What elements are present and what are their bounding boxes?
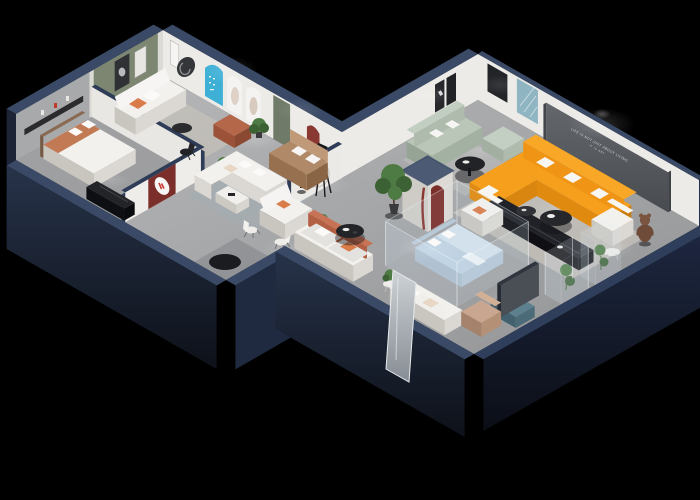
frame-art <box>170 40 178 69</box>
poster-figure-2 <box>250 97 258 115</box>
runner-decor <box>209 254 241 270</box>
table-decor <box>547 214 555 218</box>
black-oval-table <box>335 224 365 246</box>
coffee-table-living <box>172 123 192 133</box>
west-corner-face <box>7 109 16 166</box>
floorplan-render-canvas: LIFE IS NOT JUST ABOUT LIVING IT IS ART <box>0 0 700 500</box>
isometric-floorplan: LIFE IS NOT JUST ABOUT LIVING IT IS ART <box>0 0 700 500</box>
frame-art-dark <box>447 73 457 106</box>
poster-figure-1 <box>231 87 239 105</box>
frame-art-detail <box>119 68 126 77</box>
table-decor <box>463 160 470 163</box>
